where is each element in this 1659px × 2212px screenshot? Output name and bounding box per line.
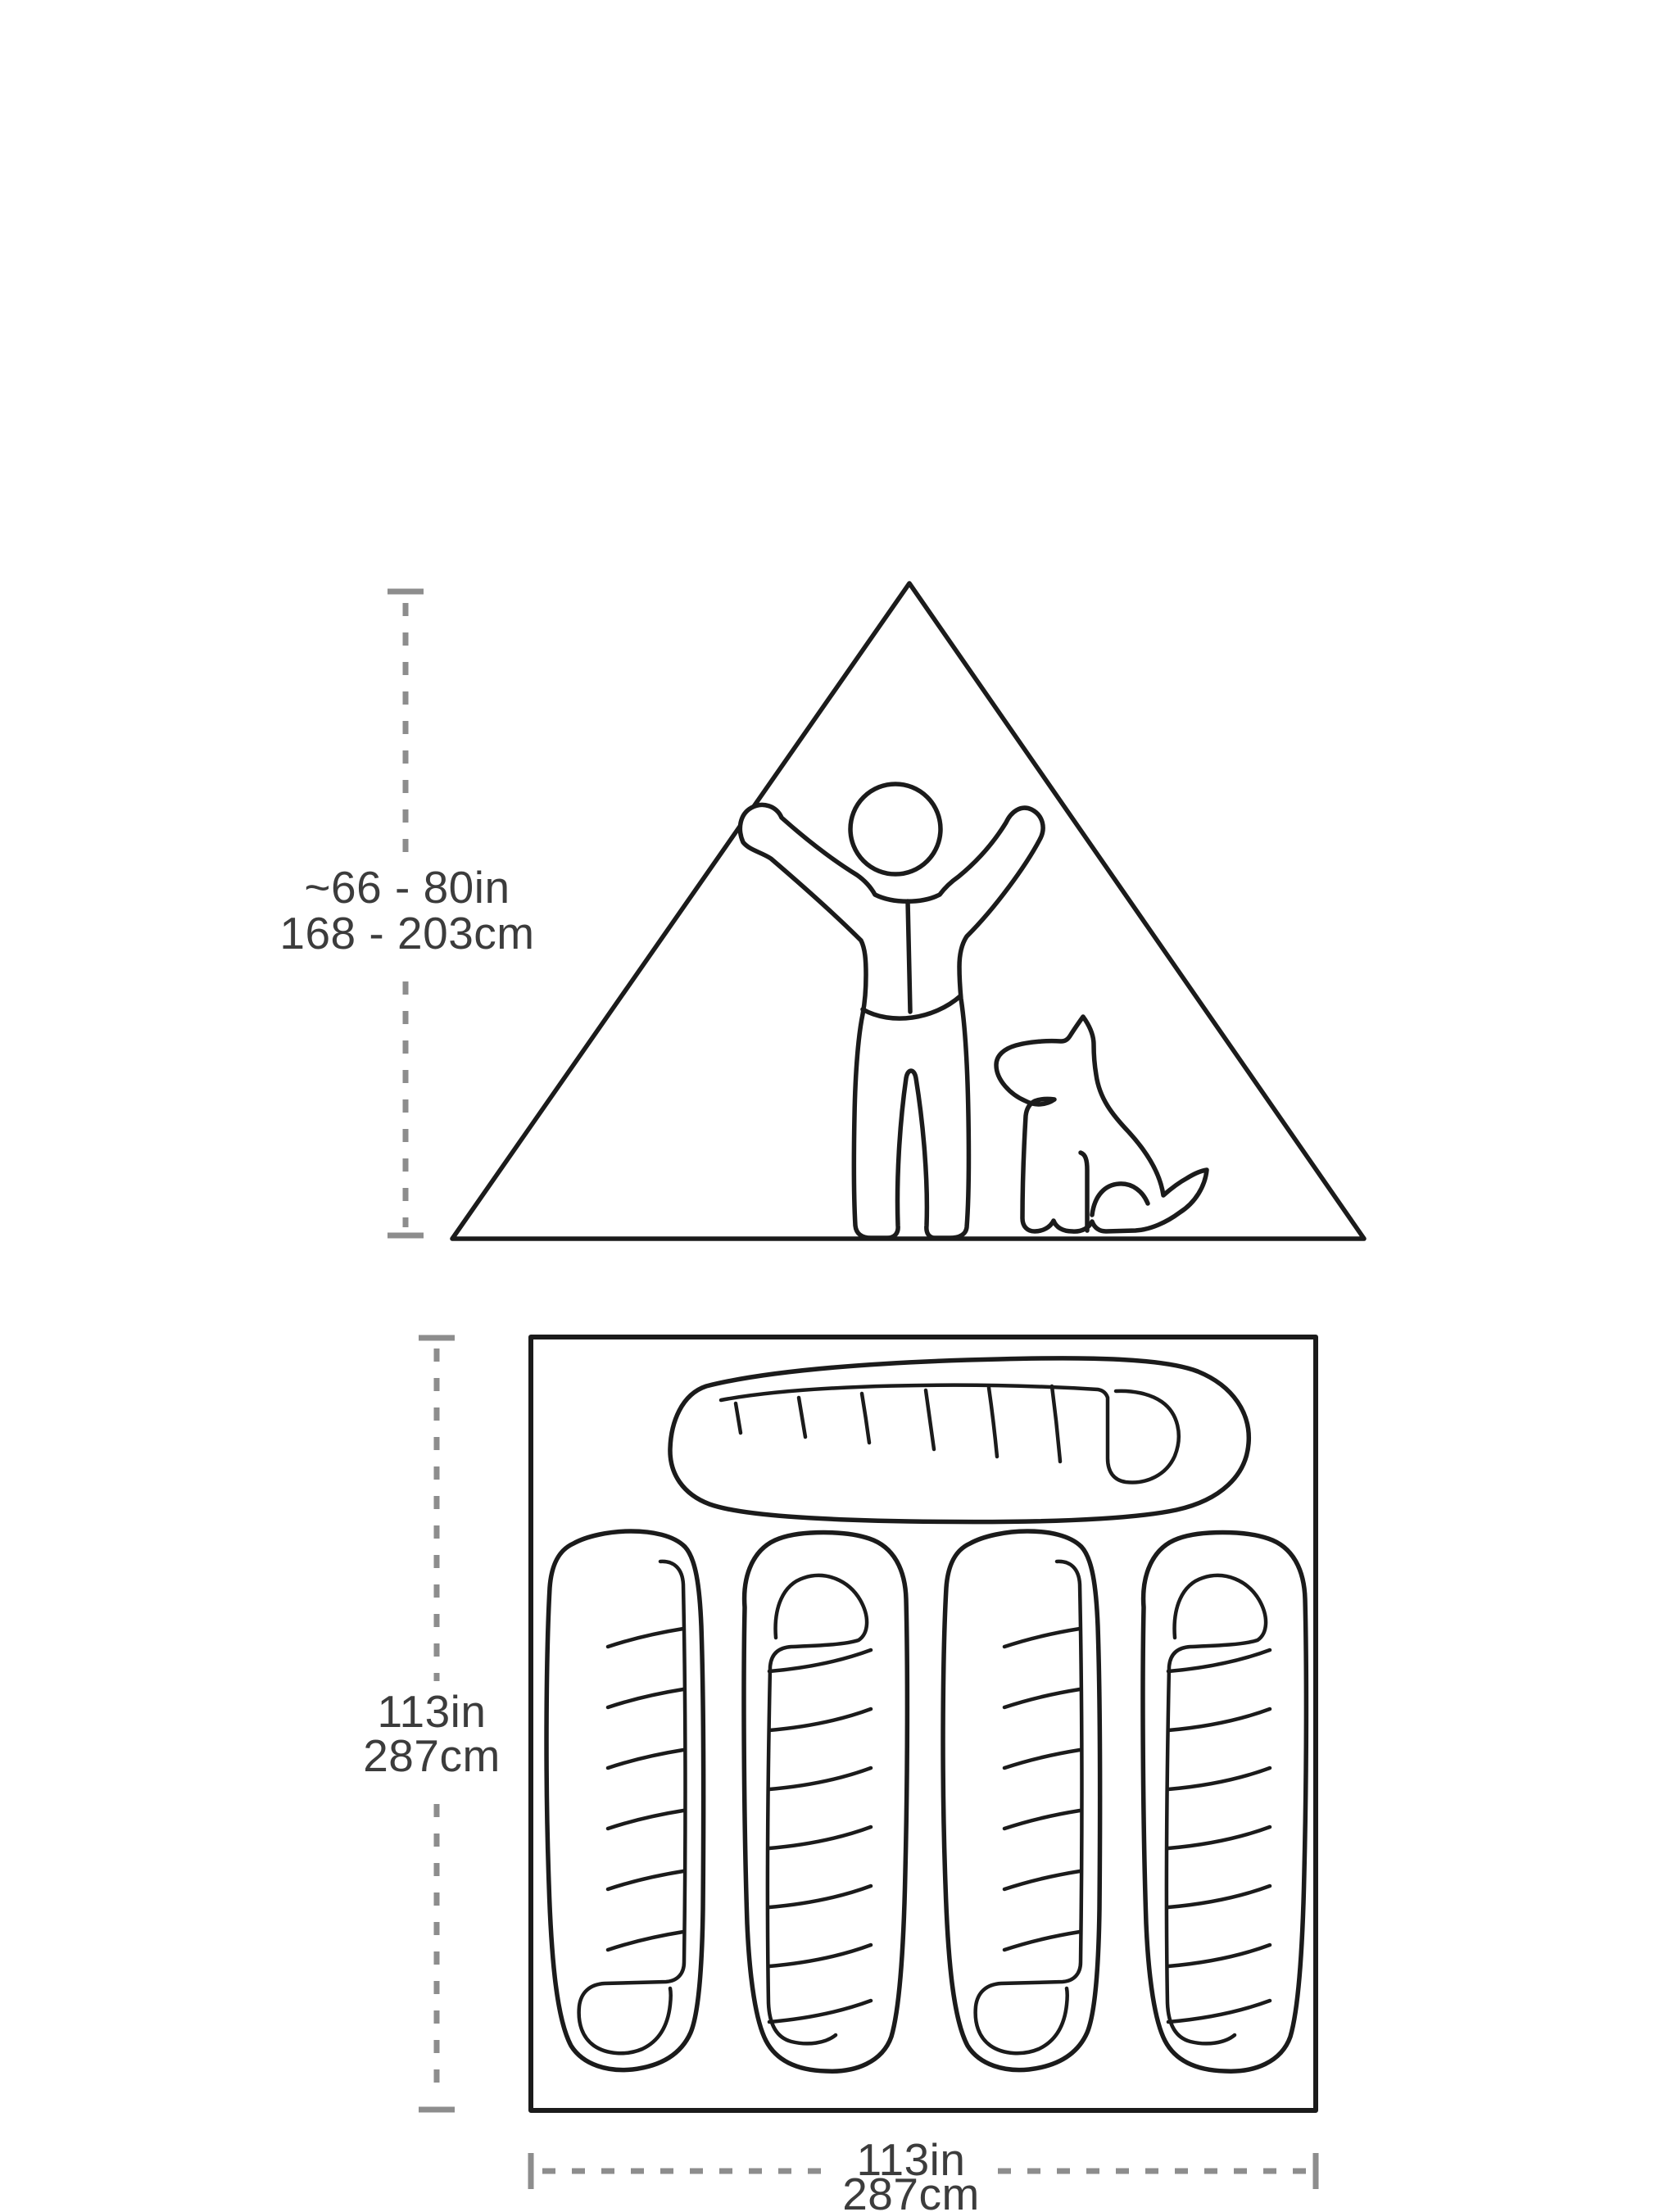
sleeping-bag-3: [943, 1531, 1100, 2070]
floor-width-dimension: 113in 287cm: [531, 2134, 1316, 2212]
sleeping-bag-1: [546, 1531, 704, 2070]
sleeping-bag-4: [1143, 1533, 1306, 2072]
sleeping-bag-2: [744, 1533, 907, 2072]
tent-spec-diagram: ~66 - 80in 168 - 203cm: [0, 0, 1659, 2212]
floor-depth-dimension: 113in 287cm: [363, 1338, 501, 2110]
height-label-inches: ~66 - 80in: [304, 862, 510, 913]
floor-depth-label-inches: 113in: [378, 1686, 487, 1737]
sleeping-bag-outline: [670, 1358, 1249, 1522]
height-dimension: ~66 - 80in 168 - 203cm: [279, 592, 534, 1235]
person-chest-line: [908, 901, 910, 1012]
height-label-cm: 168 - 203cm: [279, 908, 534, 959]
person-head: [850, 784, 941, 874]
tent-side-view: [452, 583, 1364, 1239]
diagram-canvas: ~66 - 80in 168 - 203cm: [0, 0, 1659, 2212]
floor-depth-label-cm: 287cm: [363, 1730, 501, 1781]
floor-width-label-cm: 287cm: [842, 2169, 980, 2212]
tent-floor-plan: [531, 1337, 1316, 2110]
sleeping-bag-horizontal: [670, 1358, 1249, 1522]
sleeping-bag-outline: [546, 1531, 704, 2070]
